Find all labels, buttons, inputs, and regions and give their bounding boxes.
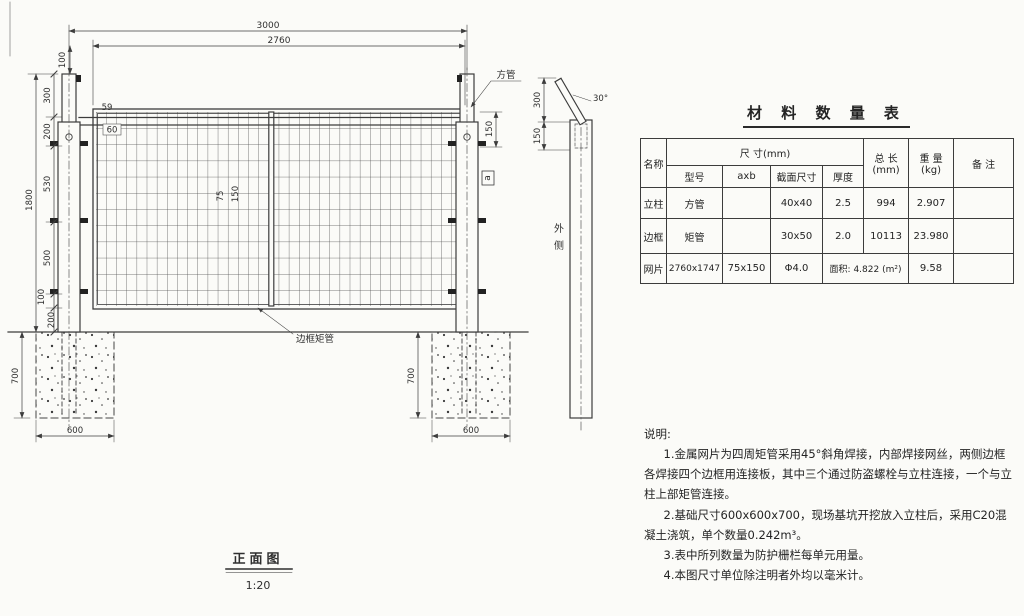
connection-tab (80, 289, 88, 294)
svg-text:500: 500 (43, 250, 53, 266)
top-connector-plate (76, 75, 81, 82)
svg-text:1800: 1800 (25, 189, 35, 211)
note-item: 3.表中所列数量为防护栅栏每单元用量。 (644, 545, 1012, 565)
left-foundation (36, 332, 114, 418)
svg-text:方管: 方管 (496, 69, 515, 81)
materials-table-section: 材 料 数 量 表 名称 尺 寸(mm) 总 长 (mm) 重 量 (kg) 备… (640, 102, 1024, 284)
connection-tab (478, 141, 486, 146)
connection-tab (448, 141, 456, 146)
header-thickness: 厚度 (823, 166, 864, 188)
connection-tab (80, 141, 88, 146)
materials-table-title: 材 料 数 量 表 (640, 102, 1013, 128)
svg-text:100: 100 (37, 289, 47, 305)
connection-tab (448, 218, 456, 223)
svg-text:700: 700 (11, 368, 21, 384)
svg-text:300: 300 (533, 92, 543, 108)
table-row: 立柱 方管 40x40 2.5 994 2.907 (641, 188, 1014, 219)
svg-text:a: a (483, 175, 493, 181)
mesh-center-stiffener (269, 112, 274, 306)
side-view-top-arm (555, 78, 586, 125)
header-size-group: 尺 寸(mm) (667, 139, 864, 166)
header-weight: 重 量 (kg) (909, 139, 954, 188)
front-view-title: 正面图 1:20 (226, 552, 292, 592)
fence-drawing: 3000 2760 100 1800 (0, 0, 648, 616)
section-mark-a: a (482, 171, 494, 185)
right-foundation (432, 332, 510, 418)
table-row: 边框 矩管 30x50 2.0 10113 23.980 (641, 219, 1014, 254)
frame-tube-label: 边框矩管 (258, 308, 334, 345)
table-header-row-1: 名称 尺 寸(mm) 总 长 (mm) 重 量 (kg) 备 注 (641, 139, 1014, 166)
blueprint-sheet: 3000 2760 100 1800 (0, 0, 1024, 616)
outer-side-label: 外 (554, 223, 564, 235)
svg-text:300: 300 (43, 87, 53, 103)
top-connector-plate (457, 75, 462, 82)
dim-mesh-width: 2760 (93, 36, 465, 105)
svg-text:3000: 3000 (257, 21, 280, 31)
area-cell: 面积: 4.822 (m²) (823, 254, 909, 284)
header-axb: axb (723, 166, 771, 188)
dim-60: 60 (103, 124, 121, 136)
svg-text:150: 150 (485, 121, 495, 137)
dim-mesh-cell-width: 75 (216, 191, 226, 202)
side-view: 30° 300 150 外 侧 (533, 78, 608, 432)
note-item: 4.本图尺寸单位除注明者外均以毫米计。 (644, 565, 1012, 585)
svg-text:60: 60 (107, 126, 118, 136)
connection-tab (448, 289, 456, 294)
dim-59: 59 (102, 103, 113, 113)
connection-tab (478, 218, 486, 223)
svg-text:600: 600 (463, 426, 479, 436)
svg-text:30°: 30° (593, 94, 608, 104)
svg-text:200: 200 (47, 312, 57, 328)
header-section-size: 截面尺寸 (771, 166, 823, 188)
connection-tab (478, 289, 486, 294)
svg-text:正面图: 正面图 (232, 552, 283, 567)
header-name: 名称 (641, 139, 667, 188)
square-tube-label: 方管 (471, 69, 521, 107)
svg-text:100: 100 (58, 52, 68, 68)
scale-label: 1:20 (246, 579, 271, 592)
materials-table: 名称 尺 寸(mm) 总 长 (mm) 重 量 (kg) 备 注 型号 axb … (640, 138, 1014, 284)
outer-side-label: 侧 (554, 239, 564, 252)
connection-tab (80, 218, 88, 223)
svg-text:600: 600 (67, 426, 83, 436)
mesh-panel (79, 109, 465, 309)
svg-text:700: 700 (407, 368, 417, 384)
svg-text:530: 530 (43, 176, 53, 192)
svg-text:150: 150 (533, 128, 543, 144)
notes-section: 说明: 1.金属网片为四周矩管采用45°斜角焊接，内部焊接网丝，两侧边框各焊接四… (644, 424, 1012, 585)
header-remark: 备 注 (954, 139, 1014, 188)
header-total-length: 总 长 (mm) (864, 139, 909, 188)
dim-mesh-cell-height: 150 (231, 186, 241, 202)
table-row: 网片 2760x1747 75x150 Φ4.0 面积: 4.822 (m²) … (641, 254, 1014, 284)
svg-text:2760: 2760 (268, 36, 291, 46)
svg-text:200: 200 (43, 123, 53, 139)
dim-top-offset: 100 (58, 46, 70, 74)
header-model: 型号 (667, 166, 723, 188)
svg-text:边框矩管: 边框矩管 (296, 333, 334, 345)
note-item: 1.金属网片为四周矩管采用45°斜角焊接，内部焊接网丝，两侧边框各焊接四个边框用… (644, 444, 1012, 504)
notes-heading: 说明: (644, 424, 1012, 444)
note-item: 2.基础尺寸600x600x700，现场基坑开挖放入立柱后，采用C20混凝土浇筑… (644, 505, 1012, 545)
